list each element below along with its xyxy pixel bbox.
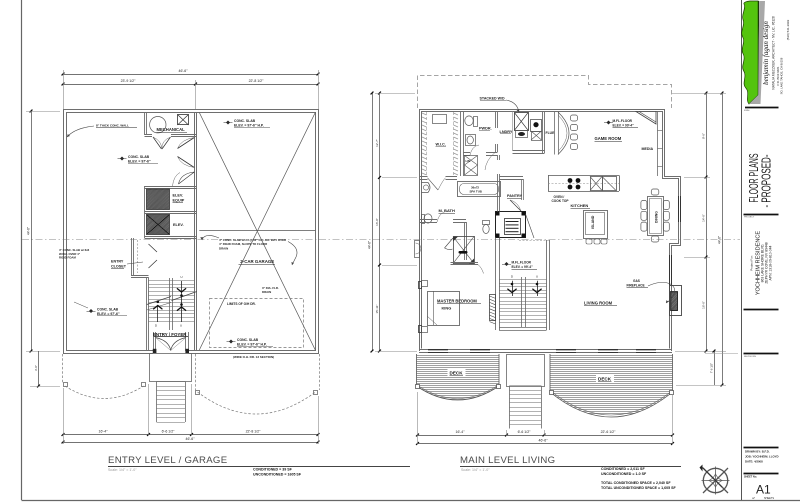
svg-text:CONC. SLAB: CONC. SLAB bbox=[97, 308, 119, 312]
svg-text:KING: KING bbox=[442, 306, 452, 311]
svg-text:16'-0": 16'-0" bbox=[375, 218, 379, 226]
svg-text:JOB: YOCHHEIM. LLOYD: JOB: YOCHHEIM. LLOYD bbox=[745, 455, 779, 459]
svg-text:CONC. SLAB: CONC. SLAB bbox=[234, 119, 256, 123]
svg-text:SO. LAKE TAHOE, CA 96158: SO. LAKE TAHOE, CA 96158 bbox=[780, 57, 784, 94]
svg-text:ENTRY: ENTRY bbox=[111, 260, 124, 264]
svg-text:DECK: DECK bbox=[450, 371, 464, 376]
svg-text:6'-6 1/2": 6'-6 1/2" bbox=[162, 430, 176, 434]
svg-text:3'-0": 3'-0" bbox=[34, 365, 38, 371]
svg-text:D: D bbox=[511, 275, 513, 279]
svg-text:SHEETS: SHEETS bbox=[764, 497, 774, 500]
svg-text:APN: 1318-09-810-044: APN: 1318-09-810-044 bbox=[769, 245, 773, 280]
svg-text:DATE: 4/2008: DATE: 4/2008 bbox=[745, 460, 763, 464]
svg-text:ELEV. = 97'-6": ELEV. = 97'-6" bbox=[128, 160, 151, 164]
svg-text:MASTER BEDROOM: MASTER BEDROOM bbox=[437, 299, 477, 304]
svg-text:M.FL.FLOOR: M.FL.FLOOR bbox=[613, 119, 633, 123]
svg-text:KITCHEN: KITCHEN bbox=[571, 203, 589, 208]
svg-text:benjamin fagan design: benjamin fagan design bbox=[762, 21, 770, 85]
svg-text:W.I.C.: W.I.C. bbox=[436, 143, 446, 147]
svg-text:U: U bbox=[180, 275, 182, 279]
svg-text:MAIN LEVEL LIVING: MAIN LEVEL LIVING bbox=[460, 455, 555, 466]
svg-text:FIRM: FIRM bbox=[744, 110, 750, 112]
svg-text:46'-6": 46'-6" bbox=[186, 437, 196, 441]
svg-text:22'-8 1/2": 22'-8 1/2" bbox=[249, 79, 265, 83]
svg-text:7'-6 1/2": 7'-6 1/2" bbox=[710, 363, 714, 373]
svg-text:2-CAR GARAGE: 2-CAR GARAGE bbox=[240, 259, 274, 264]
svg-text:MECHANICAL: MECHANICAL bbox=[157, 127, 186, 132]
svg-text:FLUE: FLUE bbox=[546, 131, 556, 135]
svg-text:6'-6 1/2": 6'-6 1/2" bbox=[518, 430, 532, 434]
svg-text:DINING: DINING bbox=[655, 211, 659, 223]
svg-text:PROJECT: PROJECT bbox=[744, 217, 755, 219]
svg-text:ELEV. = 97'-6" H.P.: ELEV. = 97'-6" H.P. bbox=[237, 343, 267, 347]
svg-text:22'-6 1/2": 22'-6 1/2" bbox=[601, 430, 617, 434]
svg-text:DECK: DECK bbox=[598, 377, 612, 382]
svg-text:GAME ROOM: GAME ROOM bbox=[595, 136, 622, 141]
svg-text:CONDITIONED = 39 SF: CONDITIONED = 39 SF bbox=[253, 468, 293, 472]
svg-text:STACKED W/D: STACKED W/D bbox=[480, 97, 505, 101]
svg-text:DRAWN BY: B.F.D.: DRAWN BY: B.F.D. bbox=[745, 450, 770, 454]
svg-text:23'-9 1/2": 23'-9 1/2" bbox=[121, 79, 137, 83]
svg-text:U: U bbox=[180, 324, 182, 328]
svg-text:LIMITS OF O/H DR.: LIMITS OF O/H DR. bbox=[227, 302, 256, 306]
svg-text:PANTRY: PANTRY bbox=[507, 194, 523, 198]
svg-text:44'-6": 44'-6" bbox=[27, 227, 31, 235]
svg-text:16'-4": 16'-4" bbox=[99, 430, 109, 434]
svg-text:LIN.: LIN. bbox=[466, 159, 472, 163]
svg-text:8" THICK CONC. WALL: 8" THICK CONC. WALL bbox=[96, 124, 129, 128]
svg-text:44'-6": 44'-6" bbox=[718, 236, 722, 244]
svg-text:MEDIA: MEDIA bbox=[642, 147, 654, 151]
svg-text:SHEET No.: SHEET No. bbox=[744, 476, 757, 479]
svg-text:FIREPLACE: FIREPLACE bbox=[627, 284, 645, 288]
svg-text:ELEV. = 99'-4": ELEV. = 99'-4" bbox=[613, 124, 635, 128]
svg-text:CLOSET: CLOSET bbox=[111, 265, 127, 269]
svg-text:ISLAND: ISLAND bbox=[591, 215, 595, 229]
svg-text:PWDR.: PWDR. bbox=[479, 127, 492, 131]
svg-text:14'-6": 14'-6" bbox=[702, 214, 706, 222]
svg-text:RIGID FOAM: RIGID FOAM bbox=[59, 256, 76, 260]
svg-text:ELEV. = 97'-6" H.P.: ELEV. = 97'-6" H.P. bbox=[234, 124, 264, 128]
svg-text:GAS: GAS bbox=[633, 279, 640, 283]
svg-text:REVISIONS: REVISIONS bbox=[744, 356, 756, 358]
svg-text:Scale: 1/4" = 1'-0": Scale: 1/4" = 1'-0" bbox=[461, 468, 490, 472]
svg-text:ELEV. = 99'-4": ELEV. = 99'-4" bbox=[512, 265, 534, 269]
svg-text:Scale: 1/4" = 1'-0": Scale: 1/4" = 1'-0" bbox=[108, 468, 137, 472]
svg-text:UNCONDITIONED = 1-0 SF: UNCONDITIONED = 1-0 SF bbox=[601, 472, 647, 476]
svg-text:15'-11": 15'-11" bbox=[375, 304, 379, 313]
svg-text:ELEV.: ELEV. bbox=[173, 194, 184, 198]
svg-text:46'-6": 46'-6" bbox=[539, 439, 549, 443]
svg-text:Project For:: Project For: bbox=[750, 255, 754, 271]
svg-text:CONC. SLAB: CONC. SLAB bbox=[237, 338, 259, 342]
svg-text:16'-6": 16'-6" bbox=[702, 301, 706, 309]
svg-text:D: D bbox=[155, 324, 157, 328]
svg-text:CONDITIONED = 2,011 SF: CONDITIONED = 2,011 SF bbox=[601, 467, 645, 471]
svg-text:ENTRY LEVEL / GARAGE: ENTRY LEVEL / GARAGE bbox=[108, 455, 227, 466]
svg-text:12'-7": 12'-7" bbox=[375, 139, 379, 147]
svg-text:TOTAL UNCONDITIONED SPACE = 1,: TOTAL UNCONDITIONED SPACE = 1,605 SF bbox=[601, 486, 677, 490]
svg-text:46'-6": 46'-6" bbox=[179, 69, 189, 73]
svg-text:COOK TOP: COOK TOP bbox=[552, 199, 570, 203]
svg-text:A1: A1 bbox=[756, 483, 771, 497]
svg-text:(WIDE O.H. DR. 13 SECTION): (WIDE O.H. DR. 13 SECTION) bbox=[233, 355, 274, 359]
svg-text:M.FL.FLOOR: M.FL.FLOOR bbox=[512, 261, 532, 265]
svg-text:ELEV.: ELEV. bbox=[173, 223, 184, 227]
svg-text:(530) 541-3992: (530) 541-3992 bbox=[786, 19, 790, 40]
svg-text:NATALIA MECZKER, ARCHITECT -: NATALIA MECZKER, ARCHITECT - NV. LIC. #6… bbox=[772, 16, 776, 89]
svg-text:DRAIN: DRAIN bbox=[262, 290, 271, 294]
svg-text:EQUIP: EQUIP bbox=[173, 199, 185, 203]
svg-text:LIVING ROOM: LIVING ROOM bbox=[584, 301, 613, 306]
svg-text:44'-6": 44'-6" bbox=[368, 241, 372, 249]
svg-text:SPA TUB: SPA TUB bbox=[470, 190, 482, 194]
svg-text:16'-4": 16'-4" bbox=[456, 430, 466, 434]
svg-text:9'-6": 9'-6" bbox=[702, 133, 706, 139]
svg-text:- PROPOSED-: - PROPOSED- bbox=[759, 155, 774, 208]
svg-text:CONC. SLAB: CONC. SLAB bbox=[128, 155, 150, 159]
svg-text:UNCONDITIONED = 1605 SF: UNCONDITIONED = 1605 SF bbox=[253, 473, 302, 477]
svg-text:TOTAL CONDITIONED SPACE = 2,: TOTAL CONDITIONED SPACE = 2,040 SF bbox=[601, 481, 671, 485]
svg-text:DRAIN: DRAIN bbox=[219, 246, 228, 250]
svg-text:M. BATH: M. BATH bbox=[439, 208, 455, 213]
svg-text:U: U bbox=[536, 275, 538, 279]
svg-text:22'-8 1/2": 22'-8 1/2" bbox=[246, 430, 262, 434]
